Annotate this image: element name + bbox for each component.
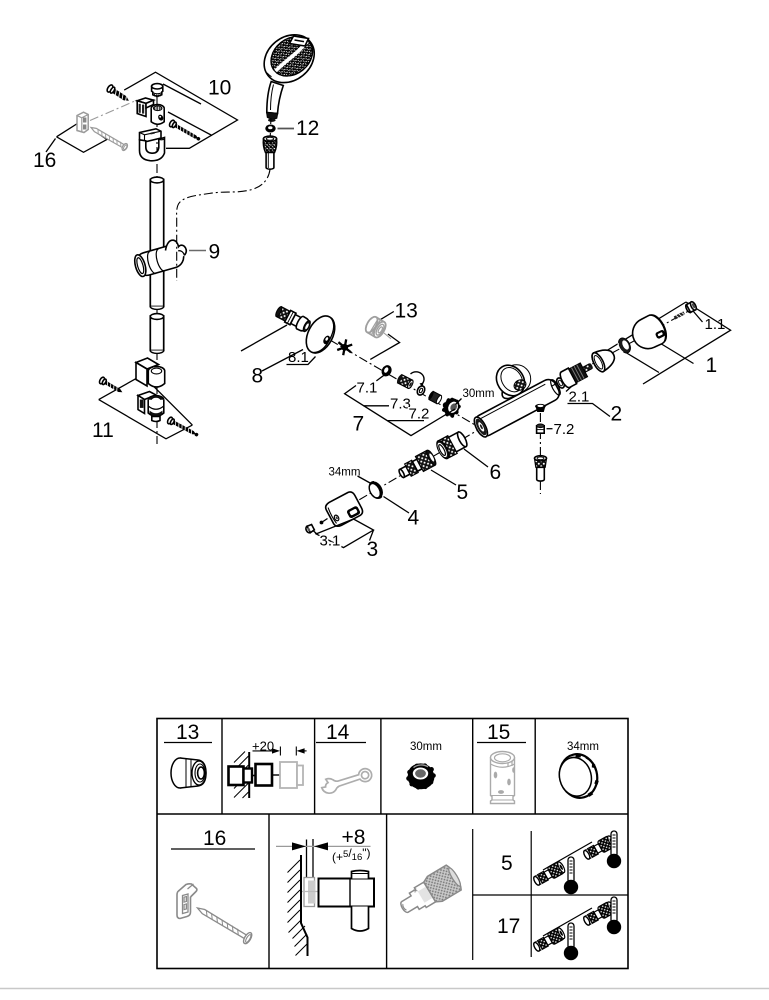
svg-text:5: 5 [501,852,513,875]
svg-text:17: 17 [497,915,520,938]
svg-text:2: 2 [611,403,623,426]
svg-text:16: 16 [33,149,56,172]
svg-text:9: 9 [209,241,221,264]
svg-text:3: 3 [367,538,379,561]
svg-text:1: 1 [706,354,718,377]
svg-text:34mm: 34mm [567,741,599,753]
svg-text:5: 5 [457,481,469,504]
svg-text:13: 13 [176,721,199,744]
svg-text:8: 8 [252,365,264,388]
svg-text:15: 15 [487,721,510,744]
svg-text:12: 12 [296,117,319,140]
svg-text:6: 6 [490,461,502,484]
svg-text:10: 10 [208,77,231,100]
svg-text:8.1: 8.1 [288,349,309,366]
svg-text:7: 7 [353,413,365,436]
svg-text:14: 14 [326,721,350,744]
svg-text:30mm: 30mm [463,388,495,400]
svg-text:4: 4 [408,507,420,530]
svg-text:3.1: 3.1 [320,533,341,550]
svg-text:13: 13 [395,300,418,323]
svg-text:30mm: 30mm [410,741,442,753]
svg-text:34mm: 34mm [329,467,361,479]
svg-text:7.2: 7.2 [554,421,575,438]
svg-text:16: 16 [203,827,226,850]
svg-text:1.1: 1.1 [705,316,726,333]
svg-text:2.1: 2.1 [569,389,590,406]
svg-text:(+5/16"): (+5/16") [332,846,371,864]
svg-text:7.2: 7.2 [409,406,430,423]
svg-text:7.1: 7.1 [357,380,378,397]
svg-text:11: 11 [92,419,114,442]
